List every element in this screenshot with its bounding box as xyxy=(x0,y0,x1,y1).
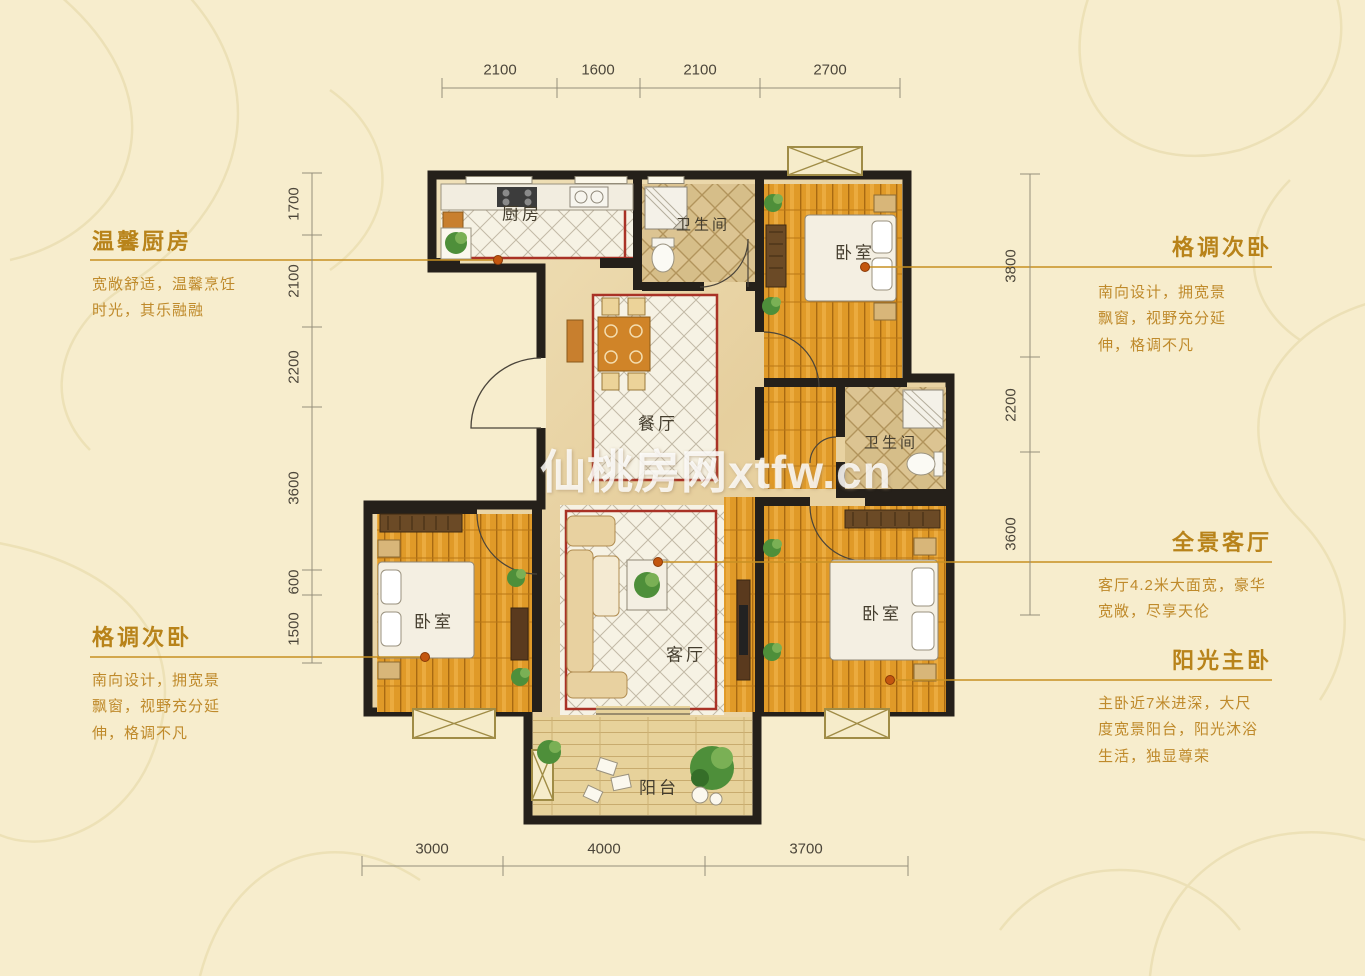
bedroom-west-bay-window xyxy=(413,709,495,738)
dim-left-2: 2100 xyxy=(286,264,303,297)
dim-bottom-3: 3700 xyxy=(789,841,822,858)
nightstand xyxy=(378,540,400,557)
callout-kitchen-title: 温馨厨房 xyxy=(92,224,192,256)
bedroom-southeast-bay-window xyxy=(825,709,889,738)
entry-door-arc xyxy=(471,358,541,428)
dim-left-3: 2200 xyxy=(286,350,303,383)
sideboard xyxy=(567,320,583,362)
room-label-bathroom-middle: 卫生间 xyxy=(864,432,918,453)
callout-bedroom-northeast-desc: 南向设计，拥宽景飘窗，视野充分延伸，格调不凡 xyxy=(1098,280,1234,359)
dimension-line-right xyxy=(1020,174,1040,615)
dim-left-4: 3600 xyxy=(286,471,303,504)
toilet-icon xyxy=(652,244,674,272)
armchair xyxy=(567,516,615,546)
nightstand xyxy=(874,195,896,212)
entry-opening xyxy=(536,358,546,428)
callout-bedroom-west-desc: 南向设计，拥宽景飘窗，视野充分延伸，格调不凡 xyxy=(92,668,228,747)
balcony-sliding-door xyxy=(596,706,690,717)
callout-living-desc: 客厅4.2米大面宽，豪华宽敞，尽享天伦 xyxy=(1098,573,1270,626)
sink-icon xyxy=(570,187,608,207)
room-label-kitchen: 厨房 xyxy=(502,200,542,225)
dim-top-3: 2100 xyxy=(683,62,716,79)
dim-left-6: 1500 xyxy=(286,612,303,645)
watermark: 仙桃房网xtfw.cn xyxy=(540,436,892,502)
chair xyxy=(628,373,645,390)
dim-top-4: 2700 xyxy=(813,62,846,79)
dimension-line-bottom xyxy=(362,856,908,876)
dim-right-1: 3800 xyxy=(1003,249,1020,282)
room-label-bedroom-west: 卧室 xyxy=(414,608,454,633)
chair xyxy=(628,298,645,315)
dimension-line-top xyxy=(442,78,900,98)
dim-left-5: 600 xyxy=(286,569,303,594)
dining-table xyxy=(598,317,650,371)
dim-top-1: 2100 xyxy=(483,62,516,79)
nightstand xyxy=(874,303,896,320)
room-label-bathroom-top: 卫生间 xyxy=(676,214,730,235)
callout-bedroom-west-title: 格调次卧 xyxy=(92,620,192,652)
nightstand xyxy=(914,664,936,681)
toilet-icon xyxy=(907,453,935,475)
nightstand xyxy=(914,538,936,555)
callout-bedroom-northeast-title: 格调次卧 xyxy=(1098,230,1272,262)
sofa xyxy=(567,550,593,672)
room-label-bedroom-southeast: 卧室 xyxy=(862,600,902,625)
room-label-dining: 餐厅 xyxy=(638,410,678,435)
wardrobe xyxy=(380,514,462,532)
room-label-living: 客厅 xyxy=(666,641,706,666)
chair xyxy=(602,298,619,315)
bedroom-northeast-bay-window xyxy=(788,147,862,175)
kitchen-window xyxy=(466,177,684,184)
dim-left-1: 1700 xyxy=(286,187,303,220)
dim-right-3: 3600 xyxy=(1003,517,1020,550)
dim-bottom-2: 4000 xyxy=(587,841,620,858)
room-label-bedroom-northeast: 卧室 xyxy=(835,239,875,264)
room-label-balcony: 阳台 xyxy=(639,774,679,799)
dimension-line-left xyxy=(302,173,322,663)
dim-top-2: 1600 xyxy=(581,62,614,79)
chair xyxy=(602,373,619,390)
callout-master-title: 阳光主卧 xyxy=(1098,643,1272,675)
tv-cabinet xyxy=(511,608,528,660)
sofa-chaise xyxy=(567,672,627,698)
nightstand xyxy=(378,662,400,679)
wardrobe xyxy=(845,510,940,528)
dim-bottom-1: 3000 xyxy=(415,841,448,858)
floorplan-page: 仙桃房网xtfw.cn 厨房 卫生间 卧室 餐厅 卫生间 卧室 客厅 卧室 阳台… xyxy=(0,0,1365,976)
callout-master-desc: 主卧近7米进深，大尺度宽景阳台，阳光沐浴生活，独显尊荣 xyxy=(1098,691,1258,770)
callout-kitchen-desc: 宽敞舒适，温馨烹饪时光，其乐融融 xyxy=(92,272,244,325)
tv-icon xyxy=(739,605,748,655)
dim-right-2: 2200 xyxy=(1003,388,1020,421)
callout-living-title: 全景客厅 xyxy=(1098,525,1272,557)
